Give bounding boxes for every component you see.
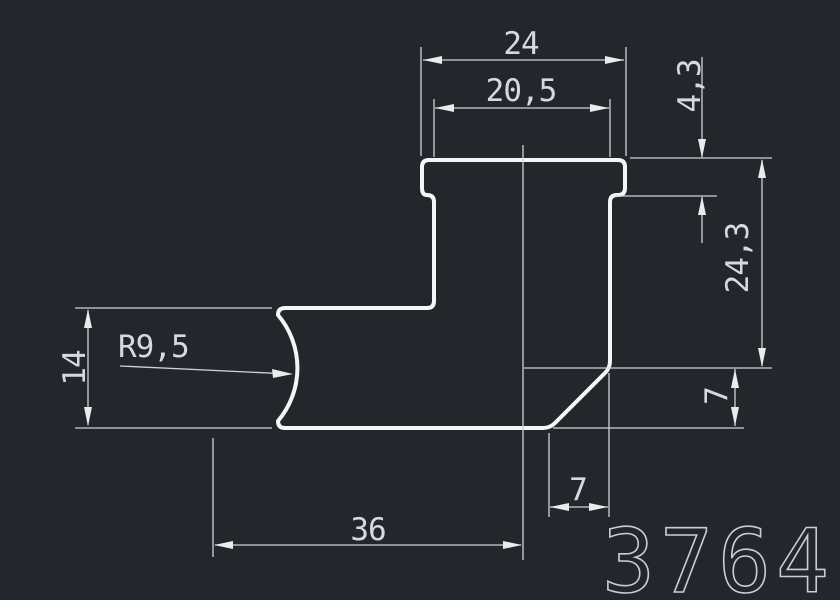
arrow-down-icon [731,407,739,426]
dim-label-arm-height: 14 [57,350,93,386]
dimension-body-width: 20,5 [434,73,610,157]
arrow-left-icon [214,541,233,549]
drawing-canvas[interactable]: 24 20,5 4,3 24,3 [0,0,840,600]
part-number-text: 3764 [602,510,834,600]
cad-viewport[interactable]: 24 20,5 4,3 24,3 [0,0,840,600]
arrow-right-icon [272,369,293,378]
leader-line [120,366,290,374]
arrow-down-icon [758,348,766,367]
dimension-base-length: 36 [213,438,522,557]
radius-leader: R9,5 [118,329,293,378]
arrow-right-icon [590,104,609,112]
dim-label-base-length: 36 [350,512,385,548]
arrow-right-icon [503,541,522,549]
arrow-down-icon [698,139,706,158]
dim-label-flange-thickness: 4,3 [672,60,708,113]
arrow-down-icon [84,407,92,426]
dimension-chamfer-width: 7 [549,373,609,517]
arrow-right-icon [605,56,624,64]
arrow-left-icon [423,56,442,64]
dimension-flange-thickness: 4,3 [615,57,772,243]
arrow-left-icon [550,503,569,511]
arrow-left-icon [435,104,454,112]
dim-label-radius: R9,5 [118,329,189,365]
dim-label-chamfer-height: 7 [699,387,735,405]
arrow-up-icon [698,196,706,215]
dim-label-chamfer-width: 7 [569,472,587,508]
arrow-up-icon [731,369,739,388]
dim-label-body-width: 20,5 [486,73,557,109]
arrow-up-icon [84,309,92,328]
part-profile-path [278,160,625,428]
arrow-up-icon [758,159,766,178]
dim-label-right-height: 24,3 [720,223,756,294]
dimension-right-height: 24,3 [524,159,772,368]
dim-label-flange-width: 24 [503,26,539,62]
